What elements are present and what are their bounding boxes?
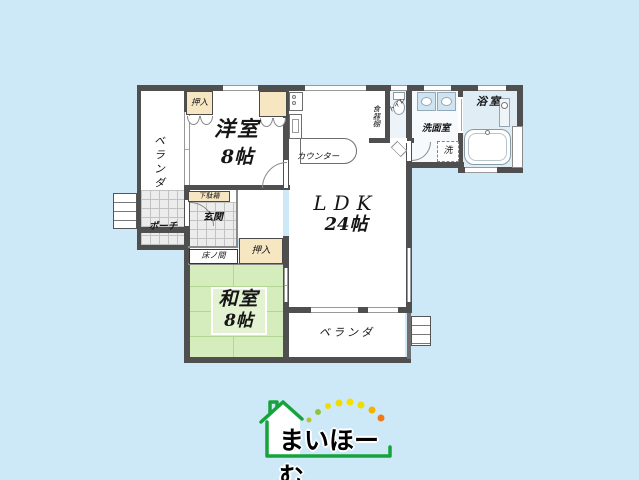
closet-bottom-box: 押入 [239,238,283,264]
closet-top-box: 押入 [186,91,213,115]
stove-burner-icon [292,95,296,99]
stairs-icon [411,316,431,346]
washbasin-icon [421,97,432,106]
cupboard-label: 食器棚 [372,98,380,134]
bathtub-faucet-icon [485,130,490,135]
tokonoma-box: 床ノ間 [189,249,238,264]
logo-text: まいほーむ [279,421,397,480]
western-room-name: 洋室 [192,118,282,140]
veranda-bottom-label: ベランダ [307,327,387,339]
stairs-icon [113,193,137,229]
closet-top-label: 押入 [191,99,208,108]
western-room-size: 8帖 [192,148,282,168]
veranda-top-label: ベランダ [153,112,165,214]
closet-topright-box [259,91,287,117]
washroom-label: 洗面室 [414,124,458,134]
laundry-label: 洗 [443,147,452,156]
bathroom-label: 浴室 [468,96,510,108]
japanese-room-name: 和室 [192,290,285,310]
ldk-name: LDK [296,193,396,214]
door-swing-icon [412,142,431,161]
porch-label: ポーチ [140,222,186,232]
maihomu-logo: まいほーむ [243,392,398,464]
ldk-size: 24帖 [296,216,396,235]
closet-bottom-label: 押入 [251,246,270,256]
counter-label: カウンター [291,153,345,162]
floor-plan-image: 押入 下駄箱 床ノ間 押入 [0,0,639,480]
bathtub-icon [468,133,507,161]
washing-machine-space: 洗 [437,141,459,162]
japanese-room-size: 8帖 [192,313,285,331]
toilet-folding-door-icon [391,141,407,157]
stove-burner-icon [292,101,296,105]
shoe-cabinet-label: 下駄箱 [199,193,220,200]
bath-window [512,126,523,168]
shoe-cabinet-box: 下駄箱 [188,191,230,202]
tokonoma-label: 床ノ間 [202,252,226,260]
kitchen-sink-basin-icon [292,119,299,133]
entrance-label: 玄関 [195,213,231,224]
washbasin-icon [441,97,452,106]
